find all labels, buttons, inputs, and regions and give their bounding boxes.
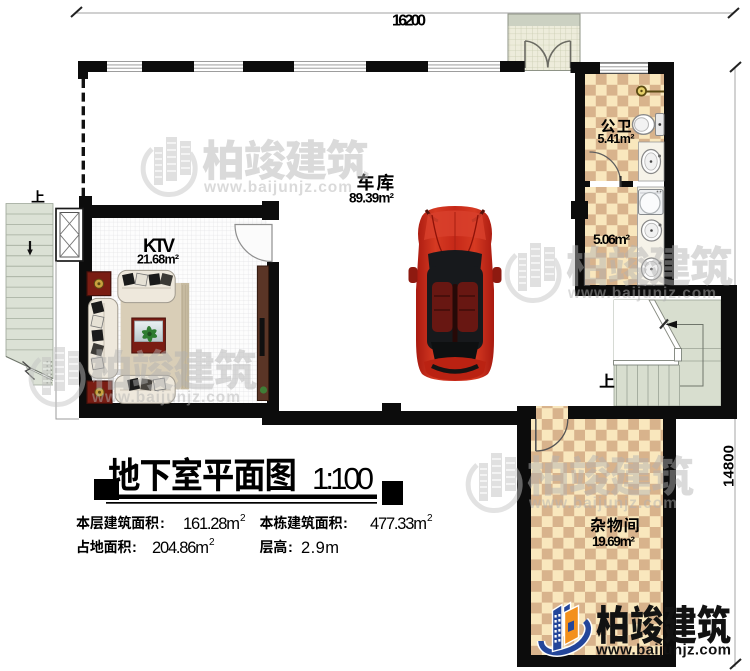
svg-text:www.baijunjz.com: www.baijunjz.com: [567, 285, 718, 302]
svg-text::: :: [343, 516, 348, 532]
svg-text:21.68m²: 21.68m²: [137, 253, 179, 267]
svg-text:477.33m: 477.33m: [370, 515, 427, 533]
svg-text:1:100: 1:100: [312, 461, 374, 496]
svg-text:16200: 16200: [392, 13, 426, 30]
svg-text::: :: [288, 540, 293, 556]
svg-text::: :: [132, 540, 137, 556]
svg-text::: :: [160, 516, 165, 532]
svg-text:www.baijunjz.com: www.baijunjz.com: [203, 179, 354, 196]
svg-text:161.28m: 161.28m: [183, 515, 240, 533]
svg-text:www.baijunjz.com: www.baijunjz.com: [91, 389, 242, 406]
svg-text:19.69m²: 19.69m²: [592, 534, 636, 549]
svg-text:2: 2: [240, 513, 246, 524]
svg-text:89.39m²: 89.39m²: [349, 191, 395, 206]
svg-text:5.06m²: 5.06m²: [593, 231, 630, 247]
svg-text:www.baijunjz.com: www.baijunjz.com: [595, 642, 732, 659]
svg-text:2.9m: 2.9m: [301, 539, 339, 557]
svg-text:14800: 14800: [721, 445, 738, 487]
svg-text:5.41m²: 5.41m²: [598, 132, 635, 146]
svg-text:204.86m: 204.86m: [152, 539, 209, 557]
svg-text:2: 2: [209, 537, 215, 548]
svg-text:2: 2: [427, 513, 433, 524]
svg-text:www.baijunjz.com: www.baijunjz.com: [528, 495, 679, 512]
